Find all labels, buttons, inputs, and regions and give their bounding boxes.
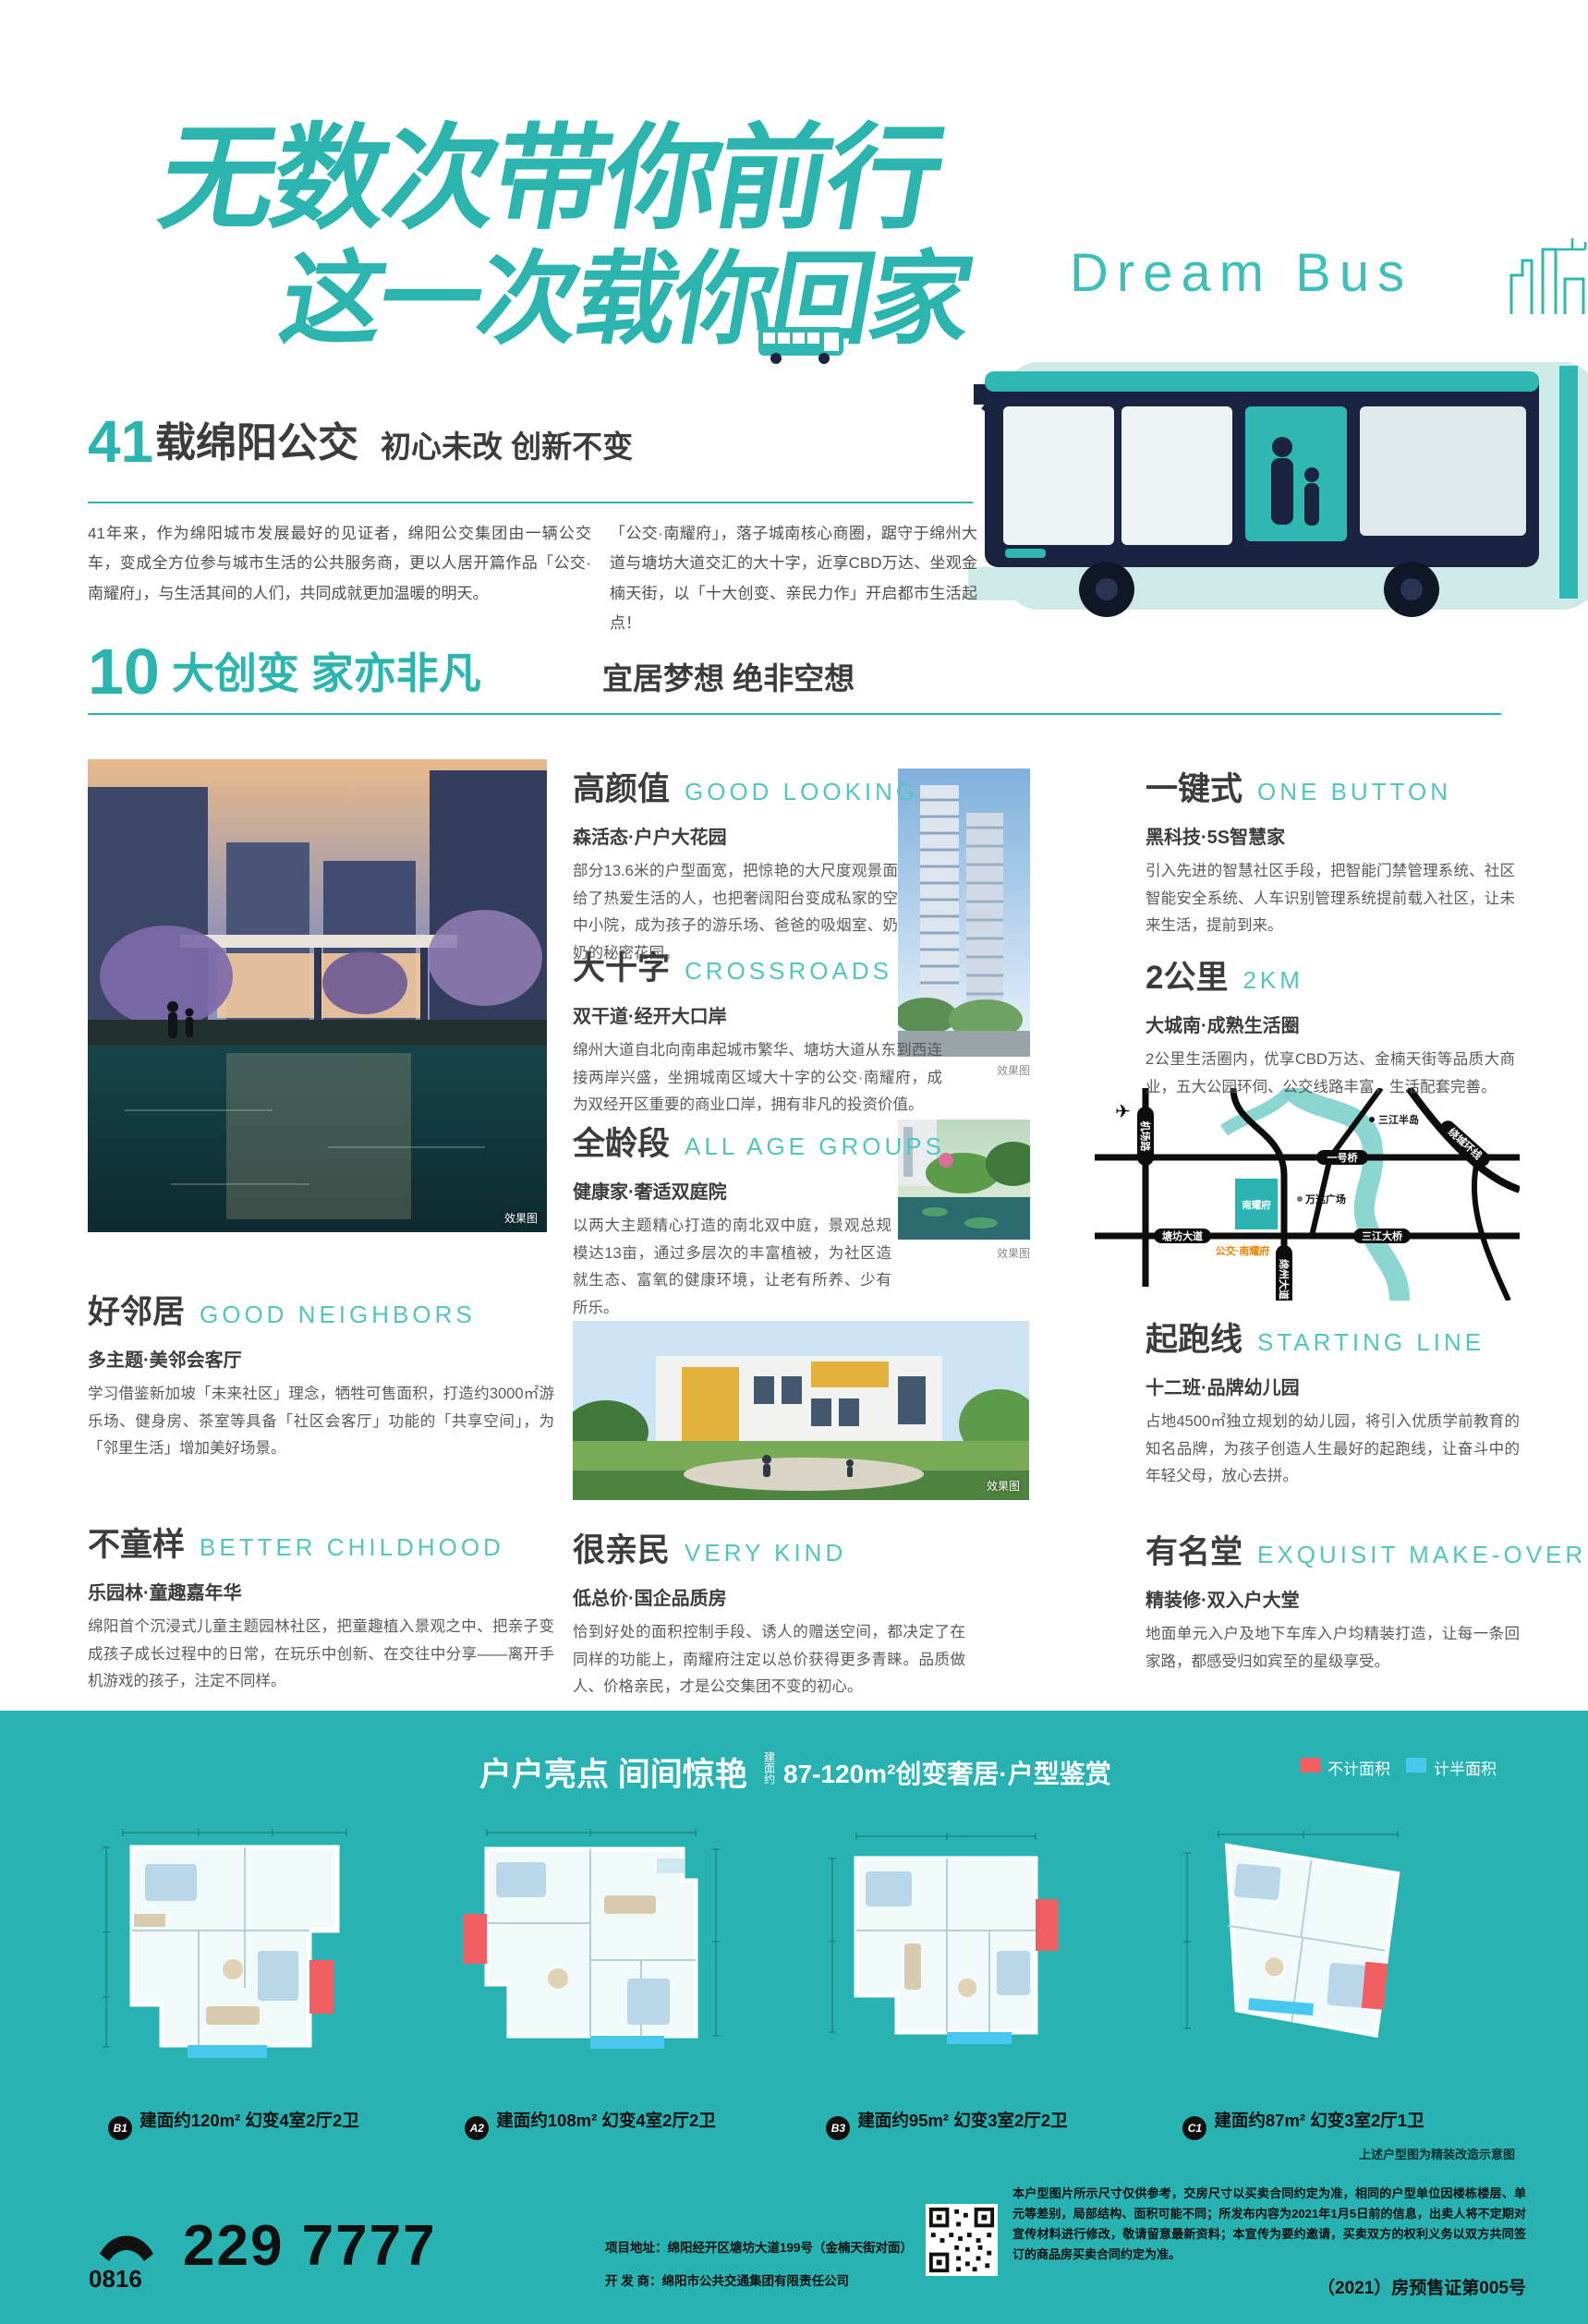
legend-cyan-label: 计半面积 (1434, 1756, 1497, 1779)
feature-body: 地面单元入户及地下车库入户均精装打造，让每一条回家路，都感受归如宾至的星级享受。 (1146, 1621, 1520, 1676)
feature-title-cn: 很亲民 (573, 1532, 670, 1568)
feature-title-cn: 有名堂 (1146, 1534, 1243, 1570)
section41-subtitle: 初心未改 创新不变 (381, 431, 633, 462)
plan-label-c1: C1建面约87m² 幻变3室2厅1卫 (1165, 2108, 1442, 2140)
map-road-label: 机场路 (1139, 1121, 1152, 1153)
map-landmark-label: 万达广场 (1304, 1192, 1346, 1205)
feature-title-cn: 起跑线 (1146, 1322, 1243, 1358)
feature-title-en: ALL AGE GROUPS (685, 1132, 945, 1160)
plan-label-text: 建面约87m² 幻变3室2厅1卫 (1214, 2111, 1424, 2130)
feature-subtitle: 十二班·品牌幼儿园 (1146, 1373, 1520, 1399)
developer-label: 开 发 商： (605, 2274, 662, 2288)
section41-number: 41 (88, 412, 153, 471)
bus-icon (756, 321, 848, 366)
feature-body: 学习借鉴新加坡「未来社区」理念，牺牲可售面积，打造约3000㎡游乐场、健身房、茶… (88, 1381, 554, 1463)
feature-title-cn: 不童样 (88, 1527, 185, 1563)
band-area-title: 87-120m²创变奢居·户型鉴赏 (783, 1754, 1111, 1791)
feature-subtitle: 双干道·经开大口岸 (573, 1001, 942, 1028)
legend-cyan-swatch (1406, 1758, 1426, 1773)
feature-good-looking: 高颜值GOOD LOOKING 森活态·户户大花园 部分13.6米的户型面宽，把… (573, 763, 898, 968)
map-landmark-label: 三江半岛 (1378, 1113, 1419, 1126)
dream-bus-illustration (968, 358, 1588, 635)
feature-title-cn: 好邻居 (88, 1294, 185, 1330)
feature-title-en: GOOD NEIGHBORS (200, 1301, 476, 1328)
plan-badge: B1 (108, 2116, 132, 2140)
plan-badge: B3 (826, 2116, 850, 2140)
feature-title-en: STARTING LINE (1257, 1328, 1485, 1356)
feature-title-en: GOOD LOOKING (685, 778, 918, 805)
phone-number: 229 7777 (183, 2213, 437, 2279)
phone-area-code: 0816 (89, 2265, 142, 2294)
qr-code (926, 2204, 998, 2276)
plan-label-text: 建面约120m² 幻变4室2厅2卫 (139, 2111, 358, 2130)
plan-label-text: 建面约108m² 幻变4室2厅2卫 (496, 2111, 715, 2130)
section10-subtitle: 宜居梦想 绝非空想 (602, 663, 855, 694)
floorplan-c1 (1165, 1822, 1442, 2073)
plan-label-a2: A2建面约108m² 幻变4室2厅2卫 (452, 2108, 729, 2140)
feature-good-neighbors: 好邻居GOOD NEIGHBORS 多主题·美邻会客厅 学习借鉴新加坡「未来社区… (88, 1286, 554, 1463)
developer-value: 绵阳市公共交通集团有限责任公司 (662, 2274, 850, 2288)
dream-bus-title: Dream Bus (1070, 242, 1412, 304)
feature-body: 以两大主题精心打造的南北双中庭，景观总规模达13亩，通过多层次的丰富植被，为社区… (573, 1213, 891, 1323)
plan-label-b3: B3建面约95m² 幻变3室2厅2卫 (808, 2108, 1085, 2140)
feature-body: 引入先进的智慧社区手段，把智能门禁管理系统、社区智能安全系统、人车识别管理系统提… (1146, 858, 1515, 940)
map-road-label: 一号桥 (1327, 1151, 1359, 1164)
render-caption: 效果图 (987, 1478, 1020, 1494)
feature-2km: 2公里2KM 大城南·成熟生活圈 2公里生活圈内，优享CBD万达、金楠天街等品质… (1146, 951, 1515, 1101)
section41-paragraph-left: 41年来，作为绵阳城市发展最好的见证者，绵阳公交集团由一辆公交车，变成全方位参与… (88, 519, 591, 609)
feature-starting-line: 起跑线STARTING LINE 十二班·品牌幼儿园 占地4500㎡独立规划的幼… (1146, 1313, 1520, 1491)
feature-title-cn: 高颜值 (573, 771, 670, 807)
plan-note: 上述户型图为精装改造示意图 (1219, 2145, 1515, 2162)
plan-label-b1: B1建面约120m² 幻变4室2厅2卫 (95, 2108, 372, 2140)
feature-body: 占地4500㎡独立规划的幼儿园，将引入优质学前教育的知名品牌，为孩子创造人生最好… (1146, 1409, 1520, 1491)
feature-body: 恰到好处的面积控制手段、诱人的赠送空间，都决定了在同样的功能上，南耀府注定以总价… (573, 1619, 965, 1701)
band-area-prefix: 建面约 (763, 1751, 775, 1792)
address-value: 绵阳经开区塘坊大道199号（金楠天街对面） (668, 2241, 914, 2255)
feature-title-cn: 2公里 (1146, 960, 1228, 996)
floorplan-a2 (452, 1822, 729, 2073)
feature-title-cn: 一键式 (1146, 771, 1243, 807)
airplane-icon: ✈ (1115, 1102, 1131, 1122)
project-address: 项目地址：绵阳经开区塘坊大道199号（金楠天街对面） (605, 2237, 913, 2256)
floorplan-b3 (808, 1822, 1085, 2073)
map-road-label: 塘坊大道 (1162, 1229, 1203, 1242)
address-label: 项目地址： (605, 2241, 668, 2255)
feature-subtitle: 大城南·成熟生活圈 (1146, 1011, 1515, 1037)
map-road-label: 三江大桥 (1362, 1229, 1403, 1242)
feature-all-age-groups: 全龄段ALL AGE GROUPS 健康家·奢适双庭院 以两大主题精心打造的南北… (573, 1118, 891, 1323)
feature-better-childhood: 不童样BETTER CHILDHOOD 乐园林·童趣嘉年华 绵阳首个沉浸式儿童主… (88, 1519, 554, 1696)
feature-title-cn: 大十字 (573, 950, 670, 986)
section10-title: 大创变 家亦非凡 (172, 652, 481, 695)
location-map: ✈ 机场路 一号桥 绵州大道 塘坊大道 三江大桥 绕城环线 三江半岛 万达广场 … (1095, 1088, 1520, 1301)
feature-subtitle: 乐园林·童趣嘉年华 (88, 1578, 554, 1604)
plan-label-text: 建面约95m² 幻变3室2厅2卫 (857, 2111, 1067, 2130)
feature-title-en: CROSSROADS (685, 957, 892, 985)
section10-divider (88, 713, 1501, 715)
feature-body: 绵州大道自北向南串起城市繁华、塘坊大道从东到西连接两岸兴盛，坐拥城南区域大十字的… (573, 1037, 942, 1120)
disclaimer-text: 本户型图片所示尺寸仅供参考，交房尺寸以买卖合同约定为准，相同的户型单位因楼栋楼层… (1012, 2184, 1526, 2265)
plan-badge: A2 (465, 2116, 489, 2140)
phone-icon (94, 2222, 159, 2263)
project-developer: 开 发 商：绵阳市公共交通集团有限责任公司 (605, 2270, 849, 2289)
feature-title-en: 2KM (1243, 966, 1303, 994)
feature-one-button: 一键式ONE BUTTON 黑科技·5S智慧家 引入先进的智慧社区手段，把智能门… (1146, 763, 1515, 940)
city-skyline-icon (1508, 233, 1588, 316)
band-title: 户户亮点 间间惊艳 (479, 1749, 747, 1796)
feature-subtitle: 黑科技·5S智慧家 (1146, 822, 1515, 849)
feature-subtitle: 森活态·户户大花园 (573, 822, 898, 849)
feature-subtitle: 低总价·国企品质房 (573, 1583, 965, 1610)
feature-title-cn: 全龄段 (573, 1126, 670, 1162)
legend-red-label: 不计面积 (1327, 1756, 1390, 1779)
map-road-label: 绵州大道 (1278, 1259, 1291, 1300)
section41-divider (88, 502, 973, 503)
entrance-render-photo: 效果图 (88, 759, 547, 1232)
map-project-marker: 南耀府 (1242, 1199, 1271, 1211)
map-project-label: 公交·南耀府 (1216, 1244, 1270, 1257)
headline-line2: 这一次载你回家 (272, 216, 983, 364)
feature-title-en: ONE BUTTON (1257, 778, 1451, 805)
feature-subtitle: 精装修·双入户大堂 (1146, 1585, 1520, 1612)
feature-subtitle: 健康家·奢适双庭院 (573, 1177, 891, 1204)
legend-red-swatch (1300, 1758, 1320, 1773)
feature-title-en: BETTER CHILDHOOD (200, 1533, 504, 1561)
poster-page: 无数次带你前行 这一次载你回家 Dream Bus (0, 0, 1588, 2324)
feature-subtitle: 多主题·美邻会客厅 (88, 1345, 554, 1372)
feature-very-kind: 很亲民VERY KIND 低总价·国企品质房 恰到好处的面积控制手段、诱人的赠送… (573, 1524, 965, 1701)
plan-badge: C1 (1182, 2116, 1206, 2140)
render-caption: 效果图 (504, 1210, 538, 1226)
section41-title: 载绵阳公交 (155, 423, 358, 464)
render-caption: 效果图 (898, 1245, 1030, 1261)
floorplan-b1 (95, 1822, 372, 2073)
kindergarten-render-photo: 效果图 (573, 1321, 1029, 1500)
feature-crossroads: 大十字CROSSROADS 双干道·经开大口岸 绵州大道自北向南串起城市繁华、塘… (573, 942, 942, 1120)
feature-body: 绵阳首个沉浸式儿童主题园林社区，把童趣植入景观之中、把亲子变成孩子成长过程中的日… (88, 1614, 554, 1696)
feature-title-en: EXQUISIT MAKE-OVER (1257, 1541, 1586, 1568)
feature-exquisit-makeover: 有名堂EXQUISIT MAKE-OVER 精装修·双入户大堂 地面单元入户及地… (1146, 1526, 1520, 1676)
presale-permit: （2021）房预售证第005号 (1146, 2274, 1526, 2299)
feature-body: 2公里生活圈内，优享CBD万达、金楠天街等品质大商业，五大公园环伺、公交线路丰富… (1146, 1047, 1515, 1101)
section41-paragraph-right: 「公交·南耀府」，落子城南核心商圈，踞守于绵州大道与塘坊大道交汇的大十字，近享C… (610, 519, 977, 638)
section10-number: 10 (88, 639, 160, 704)
feature-title-en: VERY KIND (685, 1539, 846, 1567)
